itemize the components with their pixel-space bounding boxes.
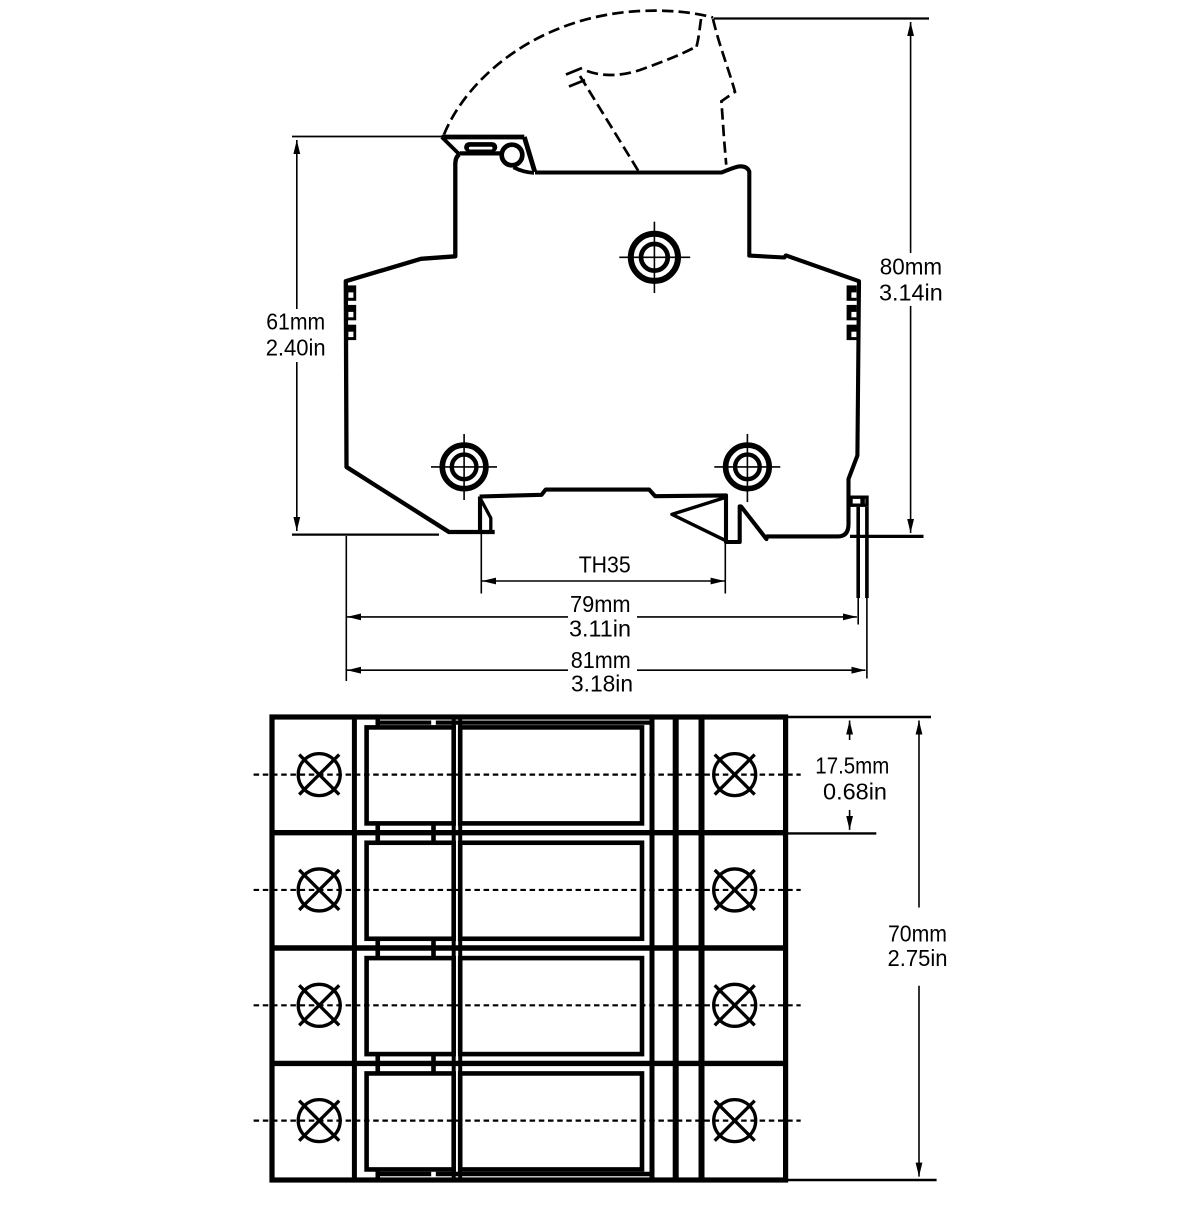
svg-text:2.75in: 2.75in xyxy=(888,945,948,971)
svg-text:81mm: 81mm xyxy=(571,647,631,673)
svg-text:61mm: 61mm xyxy=(266,309,325,335)
svg-text:70mm: 70mm xyxy=(888,921,947,947)
svg-text:3.18in: 3.18in xyxy=(571,671,633,697)
svg-text:3.11in: 3.11in xyxy=(569,615,631,641)
svg-text:17.5mm: 17.5mm xyxy=(815,753,889,779)
svg-text:79mm: 79mm xyxy=(570,591,631,617)
svg-text:2.40in: 2.40in xyxy=(266,335,326,361)
svg-text:80mm: 80mm xyxy=(880,253,942,279)
svg-text:TH35: TH35 xyxy=(579,551,631,577)
svg-text:0.68in: 0.68in xyxy=(823,779,887,805)
svg-text:3.14in: 3.14in xyxy=(879,279,943,305)
